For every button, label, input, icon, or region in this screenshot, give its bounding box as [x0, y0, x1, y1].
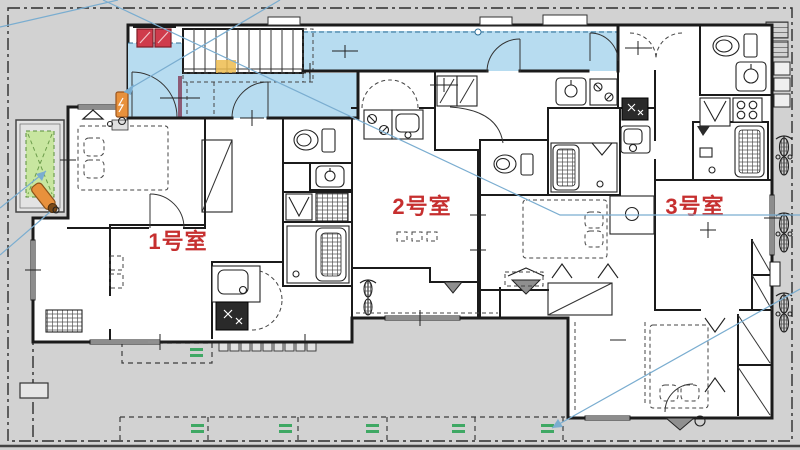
closet — [437, 76, 477, 106]
gas-stove-icon — [622, 98, 648, 120]
room-1-label: 1号室 — [148, 229, 207, 254]
gas-stove-icon — [590, 79, 617, 105]
bicycle-space — [16, 120, 64, 215]
gas-stove-icon — [733, 98, 762, 122]
sliding-door-leaf — [178, 76, 182, 118]
eave-box — [543, 15, 587, 25]
corridor-marker — [475, 29, 481, 35]
range-hood — [700, 98, 730, 126]
kitchen-sink-icon — [212, 266, 260, 302]
fire-alarm-box-icon — [134, 27, 175, 47]
shoe-cabinet — [46, 310, 82, 332]
room-2-label: 2号室 — [392, 194, 451, 219]
floor-plan-page: 1号室 2号室 3号室 — [0, 0, 800, 450]
washbasin-icon — [316, 166, 344, 187]
kitchen-sink-icon — [621, 126, 650, 153]
washbasin-icon — [736, 62, 766, 91]
boundary-jut — [20, 383, 48, 398]
meter-box-icon — [774, 62, 790, 107]
floor-plan-svg: 1号室 2号室 3号室 — [0, 0, 800, 450]
eave-box — [268, 17, 300, 25]
gas-stove-icon — [216, 302, 248, 330]
eave-box — [480, 17, 512, 25]
stair-highlight — [216, 60, 236, 73]
washing-machine-icon — [286, 193, 348, 221]
washbasin-icon — [556, 78, 586, 105]
kitchen-sink-icon — [392, 110, 423, 139]
